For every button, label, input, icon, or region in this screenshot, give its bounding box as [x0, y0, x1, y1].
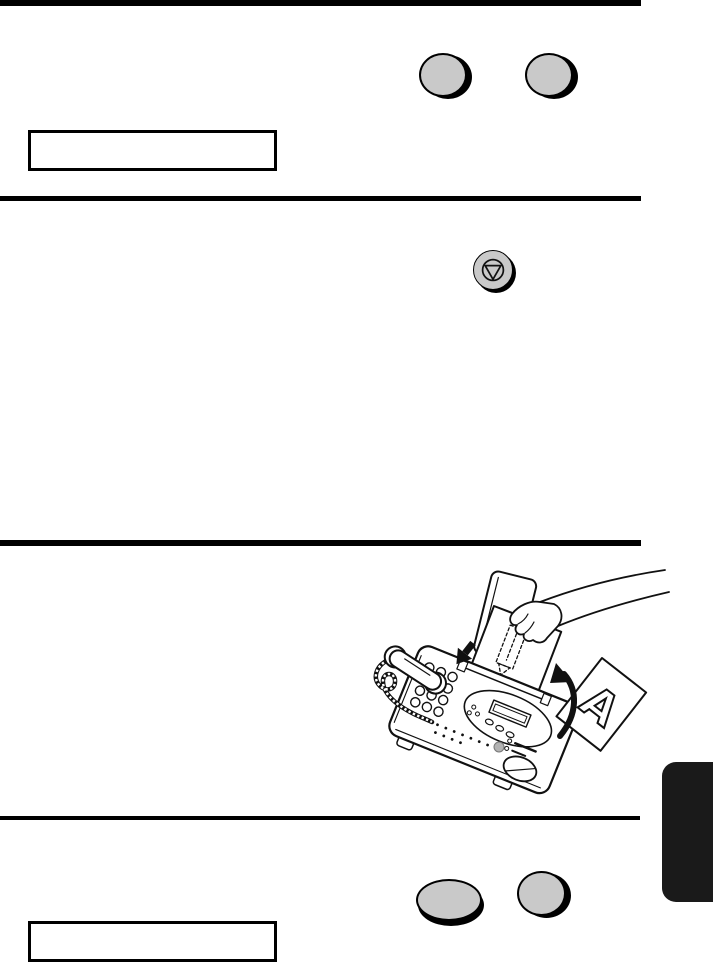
manual-page: A [0, 0, 713, 963]
roller-knob [494, 742, 504, 752]
section-divider-1 [0, 0, 641, 6]
section-divider-2 [0, 196, 641, 201]
section-divider-4 [0, 816, 640, 820]
round-key-illustration-2 [525, 53, 573, 97]
chapter-index-tab [662, 762, 713, 902]
oval-key-illustration-bottom [416, 879, 482, 921]
stop-icon [480, 257, 506, 283]
display-readout-box-bottom [28, 921, 277, 962]
stop-key-illustration [473, 250, 513, 290]
round-key-illustration-1 [419, 53, 467, 97]
fax-machine-illustration: A [372, 566, 672, 810]
section-divider-3 [0, 540, 641, 546]
round-key-illustration-bottom [517, 871, 566, 916]
display-readout-box-top [28, 130, 277, 171]
